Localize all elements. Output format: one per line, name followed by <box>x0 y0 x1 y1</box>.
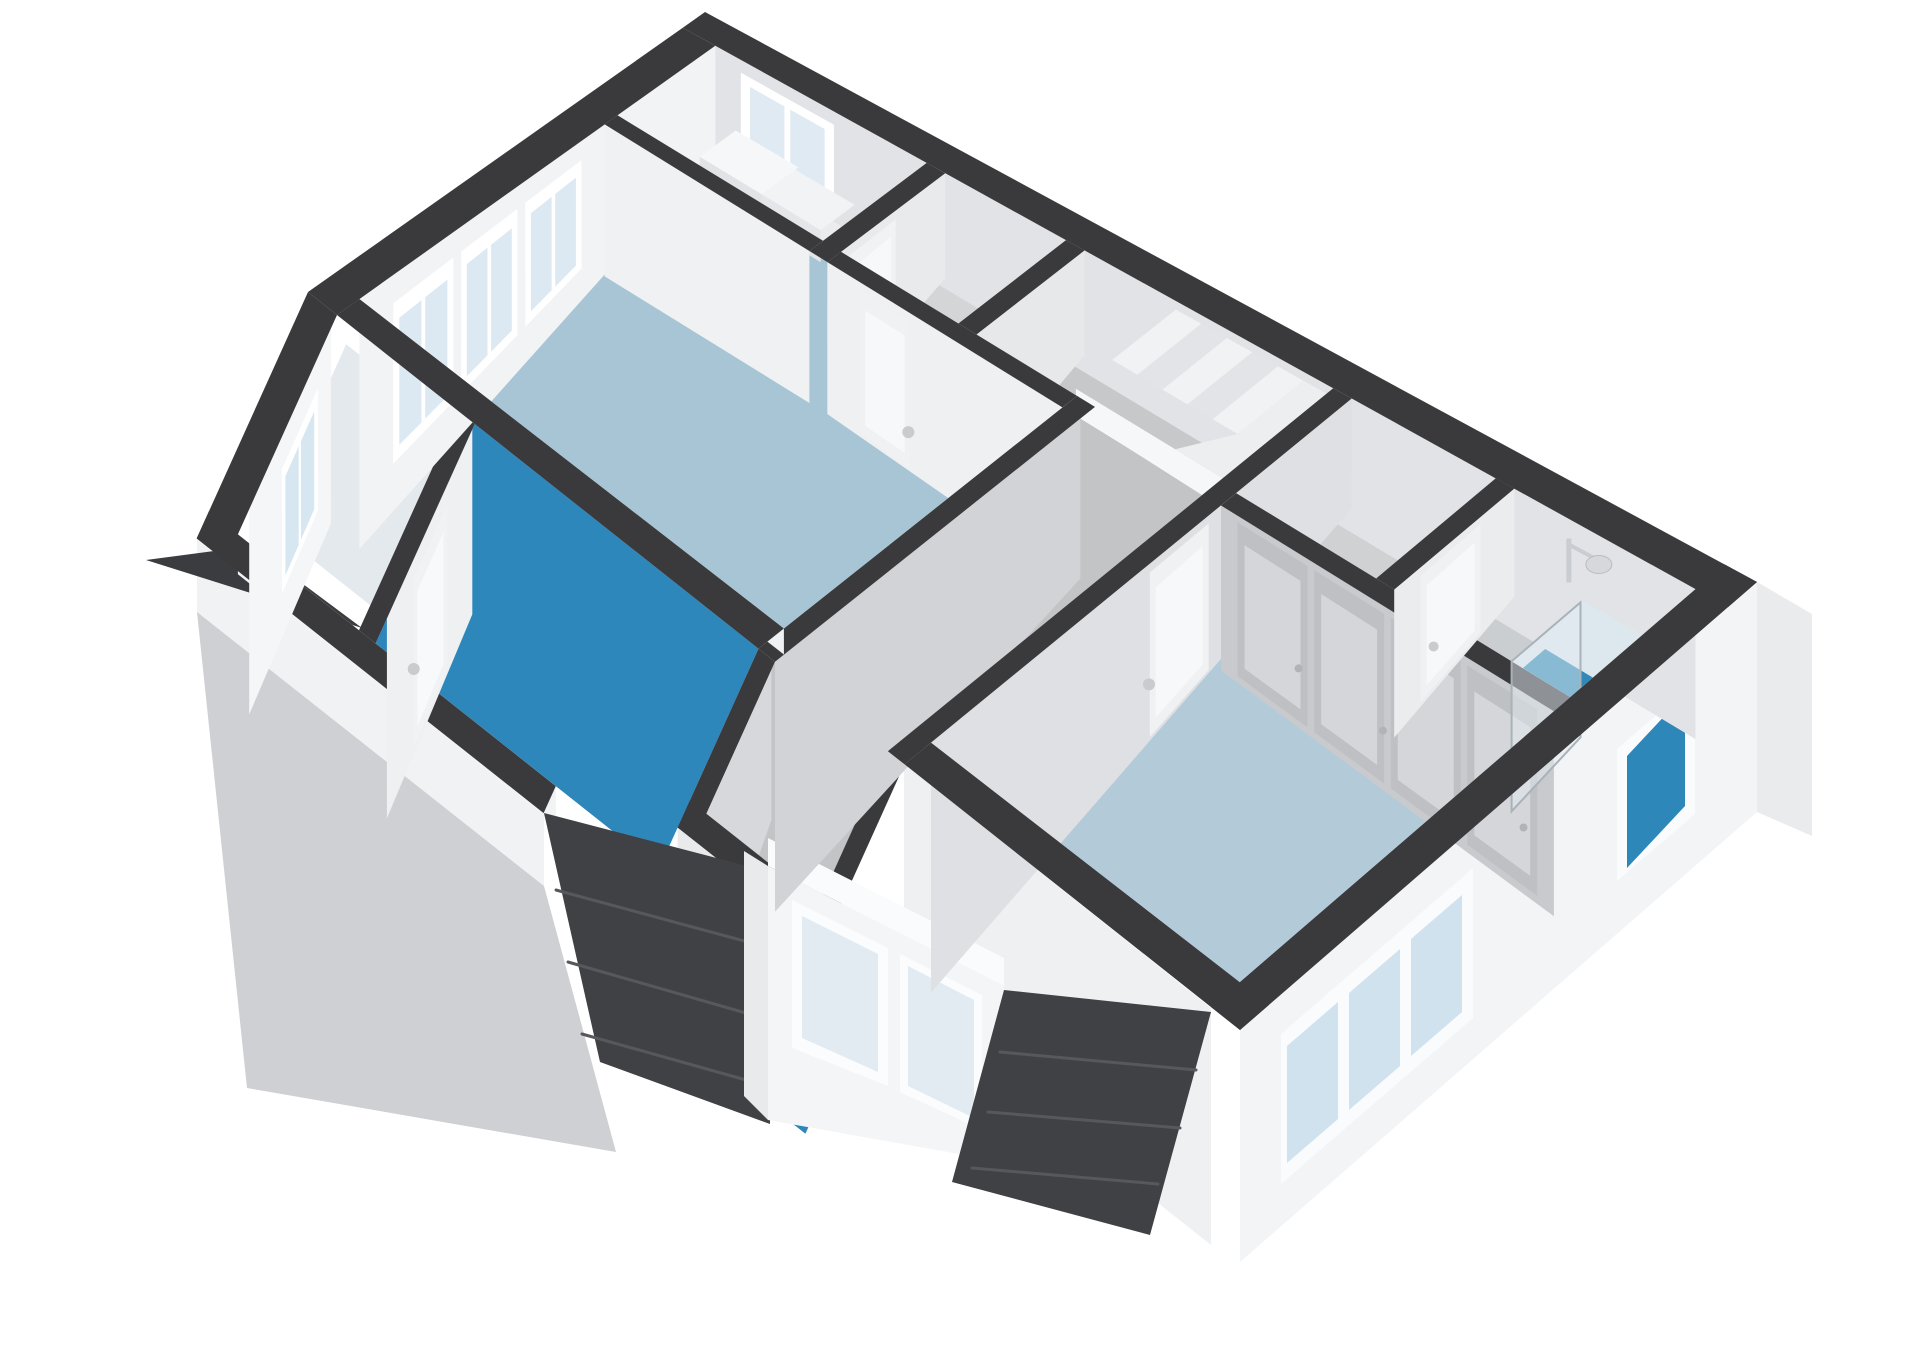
floorplan-3d-render <box>0 0 1920 1358</box>
dormer-side-face <box>744 851 768 1120</box>
floorplan-canvas <box>0 0 1920 1358</box>
bathroom-door-handle <box>1429 641 1439 651</box>
wardrobe-handle-3 <box>1520 823 1528 831</box>
bedroom1-door-handle <box>902 426 914 438</box>
wardrobe-handle-2 <box>1379 727 1387 735</box>
store-room-window-mullion <box>299 441 301 545</box>
store-room-door-handle <box>408 663 420 675</box>
nw-window-1-mullion <box>552 194 556 290</box>
nw-window-2-mullion <box>488 245 492 355</box>
wardrobe-handle-1 <box>1295 664 1303 672</box>
exterior-ne-return-wall <box>1757 582 1812 836</box>
bedroom2-door-handle <box>1143 678 1155 690</box>
shower-head-rose <box>1586 556 1612 574</box>
